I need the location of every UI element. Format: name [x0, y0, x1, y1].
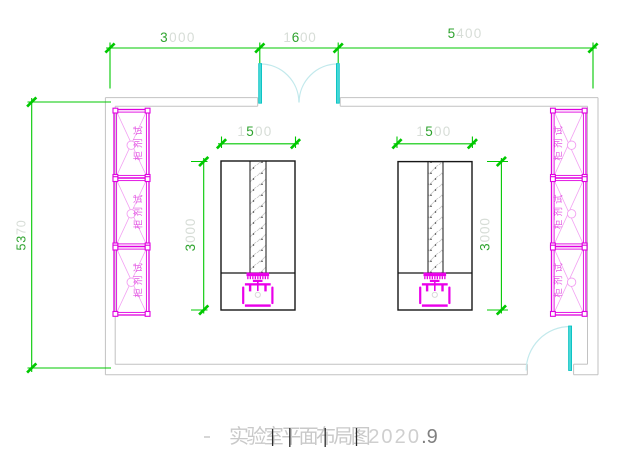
svg-text:剂: 剂: [133, 139, 145, 149]
svg-text:柜: 柜: [133, 288, 145, 298]
svg-text:柜: 柜: [552, 219, 564, 229]
svg-text:试: 试: [133, 263, 145, 273]
svg-text:试: 试: [133, 194, 145, 204]
svg-text:1500: 1500: [416, 124, 451, 139]
svg-text:剂: 剂: [133, 276, 145, 286]
svg-text:柜: 柜: [552, 288, 564, 298]
svg-text:柜: 柜: [133, 219, 145, 229]
svg-text:5370: 5370: [15, 219, 29, 250]
svg-text:3000: 3000: [478, 217, 493, 251]
svg-text:试: 试: [552, 194, 564, 204]
svg-text:5400: 5400: [448, 26, 483, 41]
svg-text:试: 试: [552, 263, 564, 273]
svg-text:剂: 剂: [552, 139, 564, 149]
svg-text:1600: 1600: [283, 30, 316, 45]
svg-text:1500: 1500: [237, 124, 272, 139]
svg-text:试: 试: [552, 126, 564, 136]
svg-text:剂: 剂: [133, 207, 145, 217]
svg-text:试: 试: [133, 126, 145, 136]
svg-text:剂: 剂: [552, 207, 564, 217]
svg-text:3000: 3000: [183, 218, 198, 252]
svg-text:3000: 3000: [160, 30, 196, 45]
svg-text:剂: 剂: [552, 276, 564, 286]
svg-text:柜: 柜: [552, 151, 564, 161]
svg-text:柜: 柜: [133, 151, 145, 161]
svg-text:实验室平面布局图2020.9: 实验室平面布局图2020.9: [229, 425, 438, 448]
